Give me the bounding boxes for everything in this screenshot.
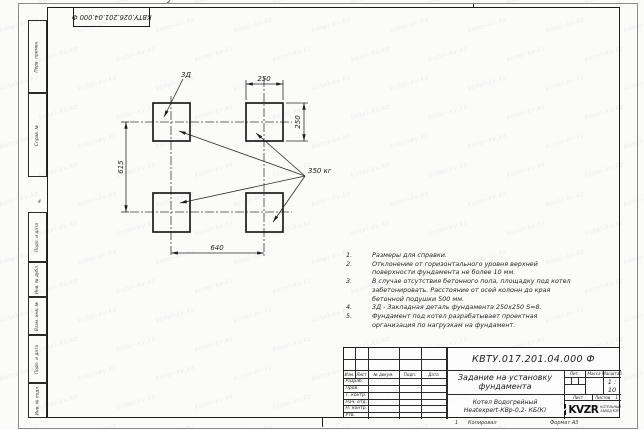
margin-box-reference-number: Справ. №: [28, 93, 47, 177]
tb-doc-title-line1: Задание на установку: [458, 373, 552, 383]
tb-scale-value: 1 : 10: [603, 377, 621, 394]
margin-box-label: Справ. №: [35, 125, 40, 146]
note-text: Фундамент под котел разрабатывает проект…: [372, 312, 574, 329]
tb-product-line1: Котел Водогрейный: [473, 399, 538, 407]
fold-mark-top: 2: [167, 0, 171, 5]
tb-sheets-value: 1: [615, 395, 618, 400]
tb-doc-title: Задание на установку фундамента: [446, 370, 564, 394]
tb-row-ncontrol: Н. контр.: [344, 405, 370, 412]
margin-box-sign-date-1: Подп. и дата: [28, 212, 47, 262]
margin-box-label: Инв. № дубл.: [35, 265, 40, 294]
tb-doc-title-line2: фундамента: [479, 382, 532, 392]
watermark-text: kotel-kv.kz: [0, 334, 1, 353]
note-number: 4.: [346, 303, 372, 312]
margin-box-label: Подп. и дата: [35, 344, 40, 373]
watermark-text: kotel-kv.kz: [0, 0, 1, 6]
watermark-text: kotel-kv.kz: [0, 102, 1, 121]
tb-sheets-label: Листов: [595, 395, 610, 400]
title-block: Изм. Лист № докум. Подп. Дата Разраб. Пр…: [343, 347, 620, 418]
company-line2: ЗАВОД КЗР: [600, 410, 621, 414]
note-item-5: 5. Фундамент под котел разрабатывает про…: [346, 312, 586, 329]
format-label: Формат А3: [550, 420, 578, 426]
margin-box-sign-date-2: Подп. и дата: [28, 335, 47, 383]
tb-col-date: Дата: [421, 370, 446, 378]
watermark-text: kotel-kv.kz: [0, 160, 1, 179]
tb-designation: КВТУ.017.201.04.000 Ф: [446, 348, 621, 370]
margin-box-first-application: Перв. примен.: [28, 20, 47, 93]
watermark-text: kotel-kv.kz: [0, 276, 1, 295]
note-text: В случае отсутствия бетонного пола, площ…: [372, 277, 574, 303]
tb-col-docnum: № докум.: [368, 370, 399, 378]
note-text: 3Д - Закладная деталь фундамента 250х250…: [372, 303, 574, 312]
margin-box-label: Перв. примен.: [35, 40, 40, 72]
note-item-4: 4. 3Д - Закладная деталь фундамента 250х…: [346, 303, 586, 312]
margin-box-inv-dupl: Инв. № дубл.: [28, 262, 47, 297]
note-text: Отклонение от горизонтального уровня вер…: [372, 260, 574, 277]
note-text: Размеры для справки.: [372, 251, 574, 260]
margin-box-label: Подп. и дата: [35, 222, 40, 251]
tb-scale-label: Масштаб: [603, 370, 621, 377]
margin-box-inv-orig: Инв. № подл.: [28, 383, 47, 418]
note-number: 2.: [346, 260, 372, 277]
note-number: 3.: [346, 277, 372, 303]
tb-product-name: Котел Водогрейный Heatexpert-КВр-0,2- КБ…: [446, 394, 564, 419]
margin-box-replaced-inv: Взам. инв. №: [28, 297, 47, 335]
watermark-text: kotel-kv.kz: [0, 218, 1, 237]
note-item-1: 1. Размеры для справки.: [346, 251, 586, 260]
first-application-text: КВТУ.026.201.04.000 Ф: [72, 13, 152, 21]
drawing-sheet: kotel-kv.kzkotel-kv.kzkotel-kv.kzkotel-k…: [0, 0, 644, 430]
note-number: 1.: [346, 251, 372, 260]
tb-row-developed: Разраб.: [344, 378, 370, 385]
watermark-text: kotel-kv.kz: [0, 392, 1, 411]
note-item-2: 2. Отклонение от горизонтального уровня …: [346, 260, 586, 277]
first-application-stamp: КВТУ.026.201.04.000 Ф: [73, 7, 150, 27]
note-number: 5.: [346, 312, 372, 329]
tb-logo-cell: KVZR КОТЕЛЬНЫЙ ЗАВОД КЗР: [564, 400, 621, 419]
margin-box-label: Взам. инв. №: [35, 301, 40, 330]
tb-col-izm: Изм.: [344, 370, 355, 378]
notes-list: 1. Размеры для справки. 2. Отклонение от…: [346, 251, 586, 329]
tb-mass-label: Масса: [585, 370, 603, 377]
watermark-text: kotel-kv.kz: [0, 44, 1, 63]
margin-box-label: Инв. № подл.: [35, 386, 40, 416]
tb-row-checked: Пров.: [344, 385, 370, 392]
note-item-3: 3. В случае отсутствия бетонного пола, п…: [346, 277, 586, 303]
kvzr-company-name: КОТЕЛЬНЫЙ ЗАВОД КЗР: [600, 406, 621, 414]
tb-row-tcontrol: Т. контр.: [344, 392, 370, 399]
zone-mark-left: 4: [38, 200, 41, 205]
copied-num: 1: [455, 420, 458, 426]
tb-row-approved: Утв.: [344, 412, 370, 419]
tb-product-line2: Heatexpert-КВр-0,2- КБ(К): [464, 407, 547, 415]
kvzr-logo-icon: [564, 404, 566, 415]
tb-col-list: Лист: [355, 370, 368, 378]
kvzr-logo-text: KVZR: [568, 404, 598, 416]
tb-col-sign: Подп.: [399, 370, 421, 378]
tb-lit-label: Лит.: [564, 370, 585, 377]
copied-label: Копировал: [468, 420, 497, 426]
